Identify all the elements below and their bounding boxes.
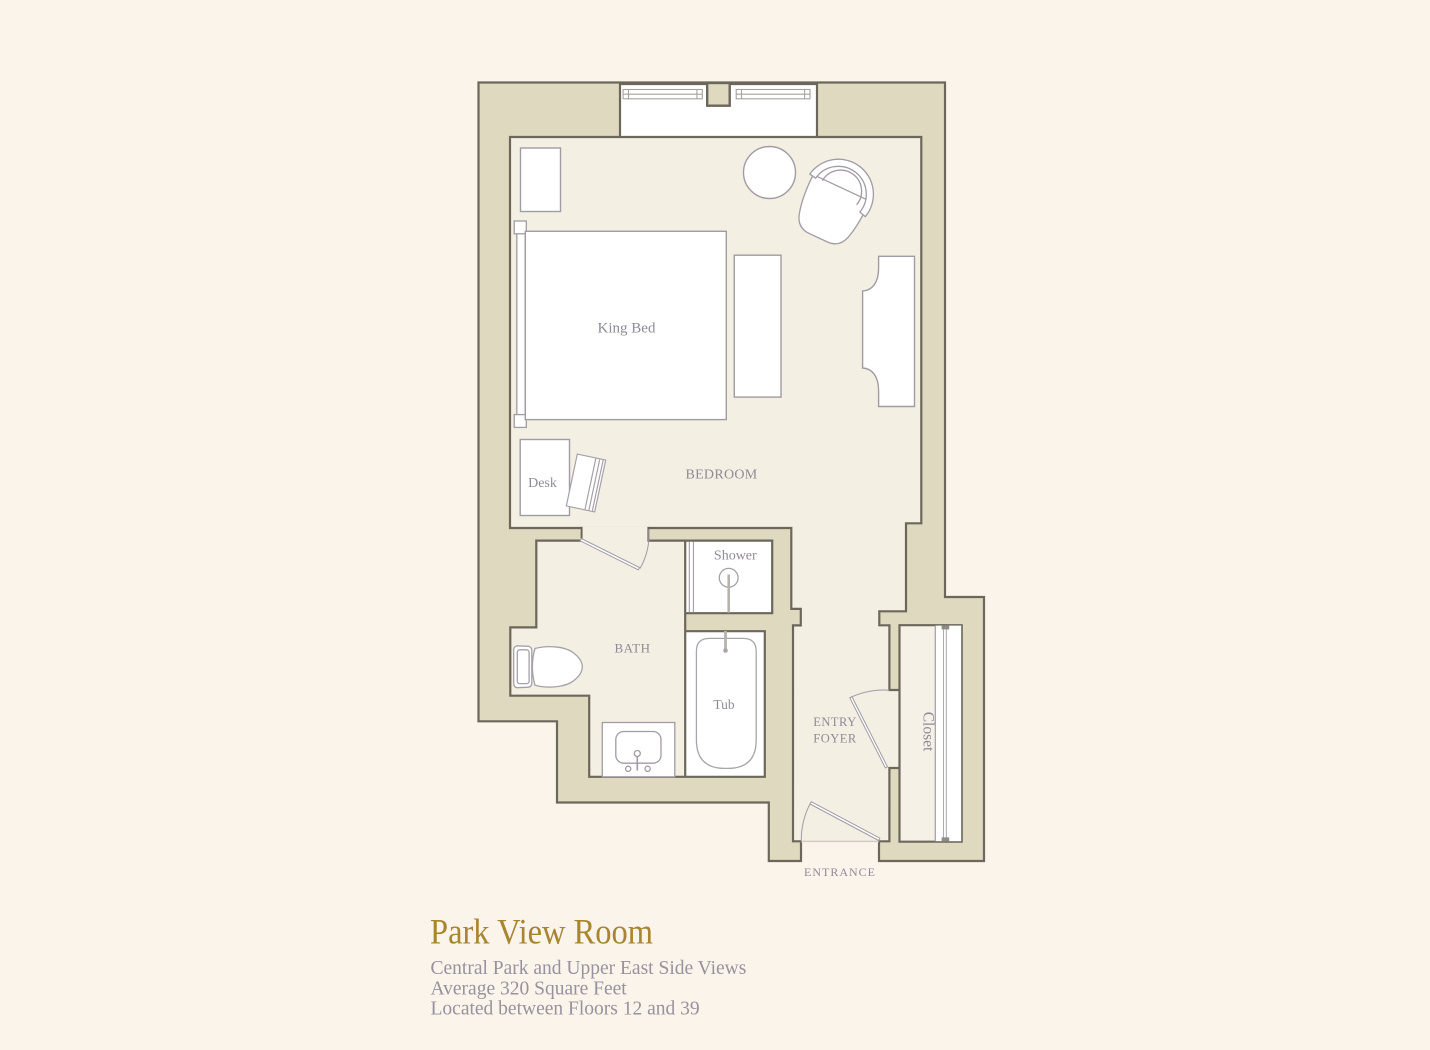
svg-text:ENTRANCE: ENTRANCE bbox=[804, 865, 876, 879]
svg-text:BEDROOM: BEDROOM bbox=[685, 468, 757, 483]
svg-text:BATH: BATH bbox=[615, 641, 651, 656]
svg-text:Average 320 Square Feet: Average 320 Square Feet bbox=[431, 978, 628, 999]
svg-text:ENTRY: ENTRY bbox=[813, 715, 856, 729]
svg-text:Located between Floors 12 and: Located between Floors 12 and 39 bbox=[431, 998, 700, 1019]
svg-text:Shower: Shower bbox=[714, 549, 757, 564]
svg-text:King Bed: King Bed bbox=[598, 320, 656, 336]
svg-text:FOYER: FOYER bbox=[813, 732, 857, 746]
svg-text:Central Park and Upper East Si: Central Park and Upper East Side Views bbox=[431, 958, 747, 979]
svg-text:Tub: Tub bbox=[713, 697, 735, 712]
svg-text:Closet: Closet bbox=[920, 712, 937, 752]
svg-text:Park View Room: Park View Room bbox=[430, 913, 653, 952]
svg-text:Desk: Desk bbox=[528, 476, 557, 491]
